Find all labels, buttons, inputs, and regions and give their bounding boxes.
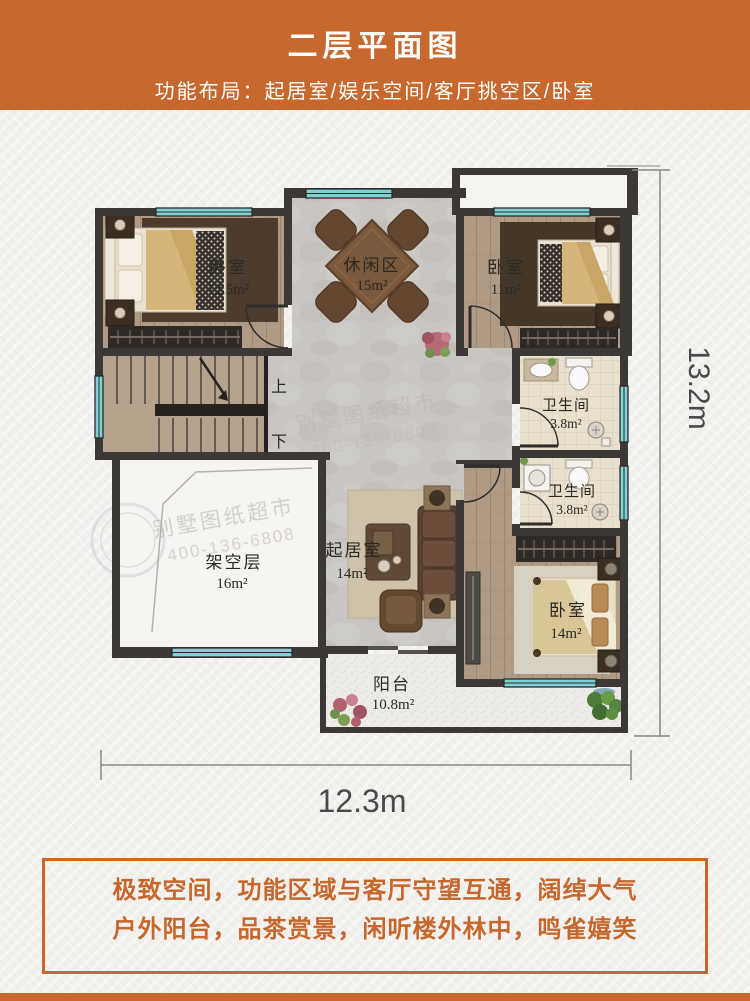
nightstand-lamp: [604, 225, 615, 236]
note-line-1: 极致空间，功能区域与客厅守望互通，阔绰大气: [45, 871, 705, 910]
room-label: 卫生间: [542, 397, 590, 414]
room-label: 起居室: [326, 541, 383, 560]
room-label: 阳台: [373, 675, 411, 694]
bed-runner-dots: [540, 244, 562, 302]
leaf: [440, 347, 450, 357]
toilet-bowl: [569, 366, 589, 390]
nightstand-lamp: [605, 563, 617, 575]
sofa-cushion: [422, 569, 456, 595]
leaf: [606, 708, 618, 720]
terrace-floor: [460, 175, 627, 208]
floor-plan: 别墅图纸超市 400-136-6808 别墅图纸超市 400-136-6808: [0, 110, 750, 850]
sliding-door-panel: [368, 646, 398, 650]
pillow: [118, 234, 142, 266]
pillow: [118, 270, 142, 302]
headboard: [611, 238, 619, 308]
armchair-cushion: [386, 596, 416, 624]
room-area: 3.8m²: [550, 416, 581, 431]
flower: [351, 717, 361, 727]
bed-post: [533, 577, 541, 585]
room-label: 卫生间: [548, 483, 596, 500]
room-label: 架空层: [206, 553, 263, 572]
stairs-up-label: 上: [271, 378, 287, 396]
sofa-cushion: [422, 540, 456, 567]
flower: [441, 332, 451, 342]
hall-plant: [422, 332, 451, 358]
sliding-door-panel: [398, 650, 428, 654]
room-area: 14m²: [550, 626, 582, 642]
page-subtitle: 功能布局：起居室/娱乐空间/客厅挑空区/卧室: [0, 75, 750, 104]
dimension-width-label: 12.3m: [318, 783, 407, 819]
dimension-width: 12.3m: [101, 750, 631, 819]
bottom-accent-band: [0, 993, 750, 1001]
page-title: 二层平面图: [0, 0, 750, 65]
nightstand-lamp: [115, 308, 126, 319]
page: 二层平面图 功能布局：起居室/娱乐空间/客厅挑空区/卧室: [0, 0, 750, 1001]
nightstand-lamp: [115, 220, 126, 231]
stair-landing-rail: [155, 404, 267, 416]
room-area: 16m²: [216, 576, 248, 592]
leaf: [592, 704, 608, 720]
shower-drain: [602, 438, 610, 446]
side-table-pot: [429, 598, 445, 614]
stair-rail: [264, 352, 268, 452]
stairs-down-label: 下: [271, 434, 287, 451]
nightstand-lamp: [605, 655, 617, 667]
side-table-pot: [429, 490, 445, 506]
washer-drum: [529, 470, 545, 486]
flower: [422, 332, 434, 344]
room-area: 10.8m²: [372, 697, 415, 713]
room-label: 卧室: [549, 601, 587, 620]
dimension-height-label: 13.2m: [682, 346, 715, 429]
room-area: 12.5m²: [207, 282, 250, 298]
room-label: 卧室: [487, 258, 525, 277]
bath-plant: [548, 358, 556, 366]
room-label: 卧室: [209, 258, 247, 277]
header-banner: 二层平面图 功能布局：起居室/娱乐空间/客厅挑空区/卧室: [0, 0, 750, 110]
bath-plant: [520, 457, 528, 465]
bed-post: [533, 649, 541, 657]
coffee-table-dish: [378, 560, 390, 572]
leaf: [425, 348, 435, 358]
footer-note: 极致空间，功能区域与客厅守望互通，阔绰大气 户外阳台，品茶赏景，闲听楼外林中，鸣…: [42, 858, 708, 974]
leaf: [338, 714, 350, 726]
flower: [346, 694, 358, 706]
leaf: [330, 709, 340, 719]
room-area: 14m²: [336, 566, 368, 582]
room-area: 11m²: [491, 282, 522, 298]
sink: [530, 363, 552, 377]
pillow: [592, 584, 608, 612]
pillow: [592, 618, 608, 646]
coffee-table-dish: [393, 556, 401, 564]
note-line-2: 户外阳台，品茶赏景，闲听楼外林中，鸣雀嬉笑: [45, 910, 705, 949]
nightstand-lamp: [604, 311, 615, 322]
flower: [353, 705, 367, 719]
room-area: 15m²: [356, 278, 388, 294]
sofa-cushion: [422, 511, 456, 538]
room-label: 休闲区: [344, 256, 401, 275]
room-area: 3.8m²: [556, 502, 587, 517]
